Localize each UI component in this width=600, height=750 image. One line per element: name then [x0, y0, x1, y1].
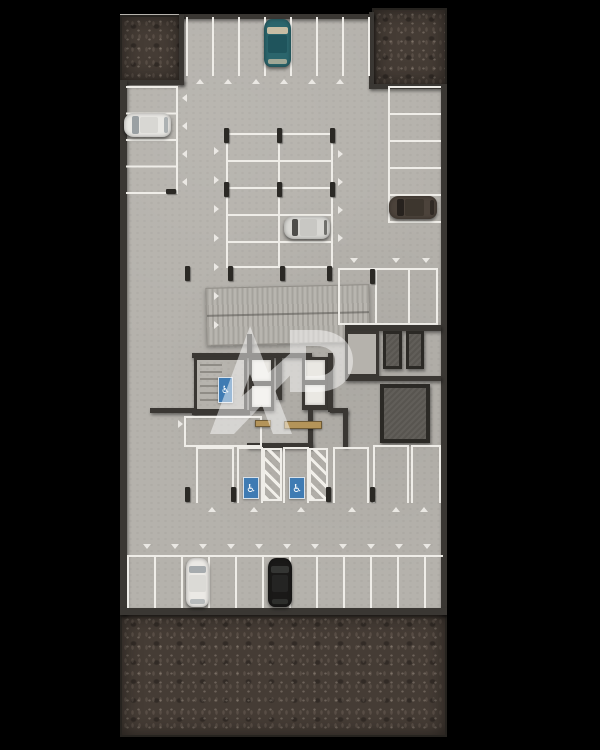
storage-room-small-b [406, 331, 424, 369]
parking-zone-center-grid [226, 133, 333, 268]
direction-arrow-icon [423, 544, 431, 549]
wall-under-soil-left [120, 80, 184, 85]
parking-space [411, 445, 441, 503]
car-rear-window [272, 599, 288, 603]
wheel-stop [330, 182, 335, 197]
direction-arrow-icon [196, 79, 204, 84]
soil-area-top-left [120, 15, 182, 82]
direction-arrow-icon [182, 150, 187, 158]
wheelchair-icon: ♿ [292, 482, 302, 495]
car-rear-window [164, 117, 168, 133]
car-teal [264, 19, 291, 67]
direction-arrow-icon [214, 176, 219, 184]
wheel-stop [326, 487, 331, 502]
direction-arrow-icon [214, 234, 219, 242]
accessible-space-sign: ♿ [243, 477, 259, 499]
direction-arrow-icon [283, 544, 291, 549]
direction-arrow-icon [338, 178, 343, 186]
direction-arrow-icon [252, 79, 260, 84]
soil-area-bottom [120, 613, 447, 737]
storage-room-large [380, 384, 430, 443]
wheel-stop [185, 487, 190, 502]
car-roof [189, 575, 205, 593]
direction-arrow-icon [182, 94, 187, 102]
perimeter-wall-right [441, 84, 447, 614]
direction-arrow-icon [224, 79, 232, 84]
car-windshield [189, 566, 207, 573]
space-divider-line [375, 270, 377, 323]
car-rear-window [324, 220, 328, 235]
direction-arrow-icon [171, 544, 179, 549]
direction-arrow-icon [395, 544, 403, 549]
wheel-stop [327, 266, 332, 281]
parking-zone-right-middle [338, 268, 438, 325]
direction-arrow-icon [297, 507, 305, 512]
wheel-stop [370, 269, 375, 284]
wheel-stop [224, 128, 229, 143]
wheelchair-icon: ♿ [246, 482, 256, 495]
space-divider-line [408, 270, 410, 323]
wheel-stop [166, 189, 176, 194]
car-brown-right [389, 196, 437, 219]
direction-arrow-icon [311, 544, 319, 549]
parking-zone-left-column [126, 86, 178, 194]
storage-room-small-a [383, 331, 402, 369]
direction-arrow-icon [420, 507, 428, 512]
car-windshield [267, 27, 288, 34]
direction-arrow-icon [338, 206, 343, 214]
floor-plan-render: ♿ ♿ ♿ [0, 0, 600, 750]
car-windshield [132, 116, 139, 134]
hatched-no-park-zone [263, 448, 282, 501]
car-rear-window [190, 599, 206, 603]
direction-arrow-icon [214, 292, 219, 300]
car-roof [272, 575, 289, 593]
storage-divider-wall [345, 376, 441, 381]
direction-arrow-icon [208, 507, 216, 512]
direction-arrow-icon [308, 79, 316, 84]
wheel-stop [280, 266, 285, 281]
wheel-stop [228, 266, 233, 281]
direction-arrow-icon [339, 544, 347, 549]
wheel-stop [224, 182, 229, 197]
car-rear-window [268, 59, 286, 63]
direction-arrow-icon [338, 234, 343, 242]
direction-arrow-icon [280, 79, 288, 84]
direction-arrow-icon [392, 258, 400, 263]
direction-arrow-icon [214, 263, 219, 271]
car-roof [140, 117, 158, 134]
car-roof [405, 199, 423, 215]
wheel-stop [185, 266, 190, 281]
wheel-stop [330, 128, 335, 143]
direction-arrow-icon [250, 507, 258, 512]
direction-arrow-icon [348, 507, 356, 512]
car-windshield [292, 219, 298, 237]
direction-arrow-icon [214, 205, 219, 213]
direction-arrow-icon [182, 122, 187, 130]
direction-arrow-icon [255, 544, 263, 549]
accessible-space-sign: ♿ [289, 477, 305, 499]
direction-arrow-icon [143, 544, 151, 549]
direction-arrow-icon [338, 150, 343, 158]
space-divider-line [278, 135, 280, 266]
car-windshield [271, 566, 289, 573]
car-roof [268, 35, 287, 52]
direction-arrow-icon [182, 178, 187, 186]
car-rear-window [430, 200, 434, 215]
direction-arrow-icon [392, 507, 400, 512]
wheel-stop [370, 487, 375, 502]
direction-arrow-icon [350, 258, 358, 263]
car-black-bottom [268, 558, 292, 607]
direction-arrow-icon [367, 544, 375, 549]
perimeter-wall-bottom [120, 608, 447, 615]
wheel-stop [231, 487, 236, 502]
car-white-left [124, 113, 171, 137]
parking-space [333, 447, 369, 503]
direction-arrow-icon [214, 147, 219, 155]
direction-arrow-icon [199, 544, 207, 549]
car-white-bottom [186, 558, 209, 607]
direction-arrow-icon [336, 79, 344, 84]
car-silver [284, 216, 330, 239]
direction-arrow-icon [227, 544, 235, 549]
parking-space [196, 447, 234, 503]
direction-arrow-icon [178, 420, 183, 428]
perimeter-wall-top-left [179, 14, 184, 84]
soil-area-top-right [372, 8, 447, 86]
parking-space [373, 445, 409, 503]
direction-arrow-icon [422, 258, 430, 263]
car-windshield [397, 199, 404, 217]
watermark-logo [202, 322, 357, 440]
core-left-extension-wall [150, 408, 196, 413]
car-roof [300, 219, 317, 235]
wheel-stop [277, 128, 282, 143]
wheel-stop [277, 182, 282, 197]
